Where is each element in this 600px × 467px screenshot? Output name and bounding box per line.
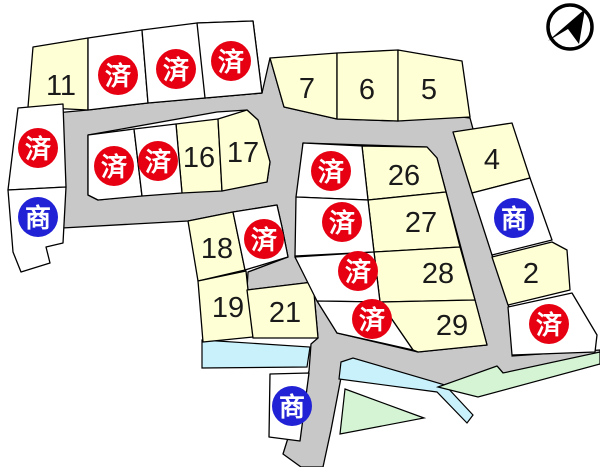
- lot-map: 1176516174218192126272829済済済済済済済済済済済済商商商: [0, 0, 600, 467]
- sold-badge-label: 済: [25, 134, 52, 164]
- lot-sold[interactable]: 済: [295, 197, 374, 256]
- lot-sold[interactable]: 済: [88, 30, 148, 110]
- commercial-badge-label: 商: [25, 203, 51, 233]
- sold-badge-label: 済: [105, 61, 132, 91]
- lot-sold[interactable]: 済: [296, 143, 368, 200]
- lot-number-label: 19: [212, 292, 244, 324]
- lot-number-label: 18: [201, 233, 233, 265]
- sold-badge-label: 済: [345, 257, 372, 287]
- lot-number-label: 11: [46, 70, 76, 102]
- lot-21[interactable]: 21: [247, 282, 318, 338]
- lot-19[interactable]: 19: [198, 271, 253, 342]
- lot-26[interactable]: 26: [362, 146, 446, 200]
- lot-number-label: 21: [269, 297, 301, 329]
- lot-number-label: 26: [388, 160, 420, 192]
- sold-badge-label: 済: [251, 225, 278, 255]
- sold-badge-label: 済: [163, 55, 190, 85]
- lot-11[interactable]: 11: [28, 38, 88, 110]
- lot-number-label: 4: [484, 144, 500, 176]
- lot-number-label: 29: [436, 310, 468, 342]
- lot-5[interactable]: 5: [398, 50, 470, 121]
- lot-number-label: 2: [523, 258, 539, 290]
- lot-number-label: 16: [183, 142, 215, 174]
- lot-number-label: 5: [421, 74, 437, 106]
- lot-sold[interactable]: 済: [197, 21, 262, 98]
- sold-badge-label: 済: [536, 310, 563, 340]
- commercial-badge-label: 商: [501, 204, 527, 234]
- lot-sold[interactable]: 済: [8, 104, 66, 190]
- lot-6[interactable]: 6: [337, 50, 398, 121]
- sold-badge-label: 済: [329, 208, 356, 238]
- lot-map-canvas: 1176516174218192126272829済済済済済済済済済済済済商商商: [0, 0, 600, 467]
- lot-number-label: 6: [359, 74, 375, 106]
- lot-number-label: 7: [299, 73, 315, 105]
- sold-badge-label: 済: [359, 305, 386, 335]
- lot-sold[interactable]: 済: [88, 129, 142, 200]
- lot-28[interactable]: 28: [374, 247, 475, 302]
- lot-number-label: 17: [227, 137, 259, 169]
- lot-sold[interactable]: 済: [134, 124, 182, 196]
- lot-number-label: 28: [422, 258, 454, 290]
- sold-badge-label: 済: [218, 47, 245, 77]
- lot-27[interactable]: 27: [368, 192, 460, 252]
- sold-badge-label: 済: [145, 147, 172, 177]
- sold-badge-label: 済: [318, 157, 345, 187]
- sold-badge-label: 済: [101, 152, 128, 182]
- lot-number-label: 27: [405, 207, 437, 239]
- lot-16[interactable]: 16: [176, 119, 222, 193]
- commercial-badge-label: 商: [279, 392, 305, 422]
